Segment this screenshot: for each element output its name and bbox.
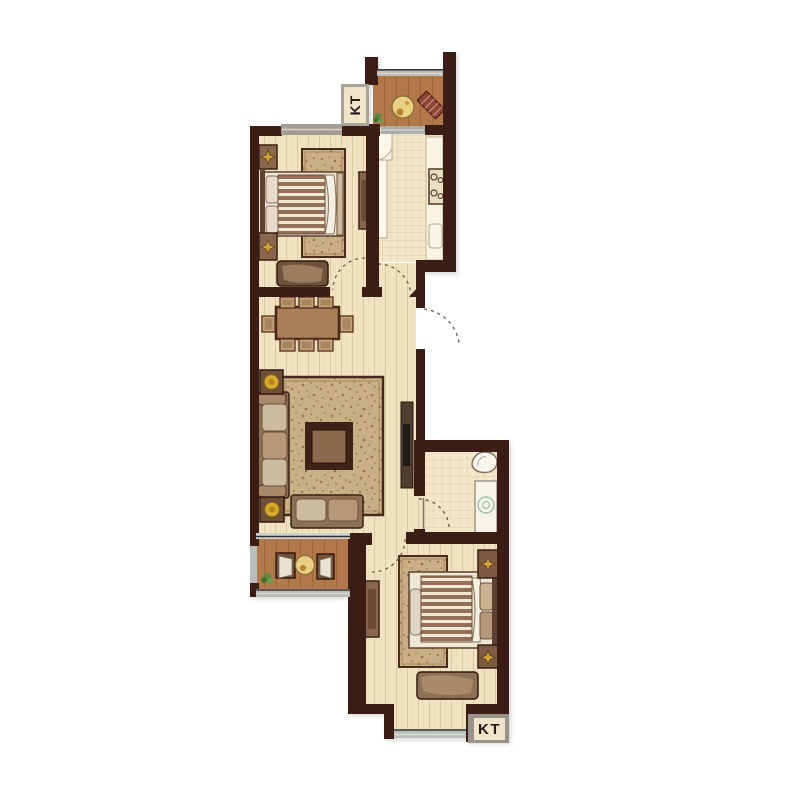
- svg-text:KT: KT: [478, 721, 501, 738]
- svg-text:KT: KT: [347, 95, 363, 116]
